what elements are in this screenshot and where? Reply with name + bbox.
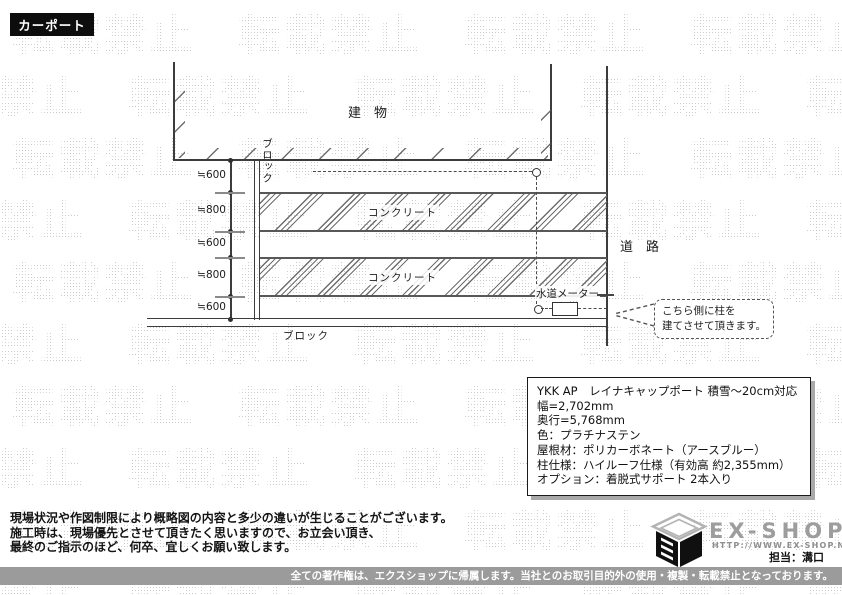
- right-wall-hatch-ticks: [541, 88, 551, 158]
- watermark-text: 転載禁止: [128, 435, 312, 497]
- site-plan-diagram: 建 物 道 路 ブロック ≒600 ≒800 ≒600 ≒800 ≒600 コン…: [0, 0, 842, 360]
- spec-line: 屋根材：ポリカーボネート（アースブルー）: [537, 443, 801, 458]
- bottom-wall-hatch-ticks: [182, 148, 548, 159]
- post-marker-bottom: [534, 305, 543, 314]
- watermark-text: 転載禁止: [12, 373, 196, 435]
- callout-arrow: [612, 300, 656, 330]
- dimension-tick: [215, 257, 245, 259]
- road-label: 道 路: [620, 236, 659, 255]
- ex-shop-cube-icon: [650, 512, 708, 569]
- callout-text-line1: こちら側に柱を: [662, 304, 766, 319]
- spec-line: オプション：着脱式サポート 2本入り: [537, 472, 801, 487]
- post-position-callout: こちら側に柱を 建てさせて頂きます。: [654, 299, 774, 339]
- watermark-text: 転載禁止: [0, 435, 86, 497]
- site-notes: 現場状況や作図制限により概略図の内容と多少の違いが生じることがございます。 施工…: [10, 511, 453, 555]
- page-title: カーポート: [18, 15, 86, 34]
- dimension-tick: [215, 192, 245, 194]
- front-block-line: [147, 318, 607, 327]
- note-line: 施工時は、現場優先とさせて頂きたく思いますので、お立会い頂き、: [10, 526, 453, 541]
- dimension-label: ≒600: [184, 169, 226, 181]
- concrete-label-1: コンクリート: [366, 205, 439, 220]
- quote-sheet-page: 転載禁止転載禁止転載禁止転載禁止転載禁止転載禁止転載禁止転載禁止転載禁止転載禁止…: [0, 0, 842, 595]
- note-line: 最終のご指示のほど、何卒、宜しくお願い致します。: [10, 540, 453, 555]
- spec-line: 柱仕様：ハイルーフ仕様（有効高 約2,355mm）: [537, 458, 801, 473]
- watermark-text: 転載禁止: [238, 373, 422, 435]
- meter-dashed-connector-left: [541, 308, 552, 309]
- block-label-vertical: ブロック: [260, 138, 275, 196]
- carport-outline-dashed-side: [536, 177, 537, 304]
- spec-line: YKK AP レイナキャップポート 積雪～20cm対応: [537, 384, 801, 399]
- dimension-label: ≒800: [184, 204, 226, 216]
- product-spec-box: YKK AP レイナキャップポート 積雪～20cm対応 幅=2,702mm 奥行…: [527, 377, 811, 496]
- building-label: 建 物: [348, 102, 387, 121]
- left-wall-hatch-ticks: [175, 72, 185, 158]
- dimension-label: ≒600: [184, 237, 226, 249]
- concrete-label-2: コンクリート: [366, 270, 439, 285]
- dimension-tick: [215, 231, 245, 233]
- block-label-bottom: ブロック: [283, 328, 329, 343]
- spec-line: 色：プラチナステン: [537, 428, 801, 443]
- dimension-tick: [215, 296, 245, 298]
- copyright-bar: 全ての著作権は、エクスショップに帰属します。当社とのお取引目的外の使用・複製・転…: [0, 567, 842, 585]
- meter-dashed-connector-right: [578, 308, 607, 309]
- spec-line: 奥行=5,768mm: [537, 413, 801, 428]
- callout-text-line2: 建てさせて頂きます。: [662, 319, 766, 334]
- spec-line: 幅=2,702mm: [537, 399, 801, 414]
- watermark-text: 転載禁止: [806, 435, 842, 497]
- page-title-badge: カーポート: [10, 13, 94, 36]
- ex-shop-wordmark: EX-SHOP: [709, 519, 842, 543]
- post-marker-top: [532, 168, 541, 177]
- watermark-text: 転載禁止: [354, 435, 538, 497]
- water-meter-label: 水道メーター: [535, 286, 600, 301]
- carport-outline-dashed-top: [313, 171, 532, 172]
- water-meter-leader-line: [597, 294, 614, 296]
- watermark-text: 転載禁止: [464, 497, 648, 559]
- dimension-dot: [228, 158, 233, 163]
- dimension-label: ≒800: [184, 269, 226, 281]
- dimension-label: ≒600: [184, 301, 226, 313]
- water-meter-box: [552, 302, 578, 316]
- note-line: 現場状況や作図制限により概略図の内容と多少の違いが生じることがございます。: [10, 511, 453, 526]
- agent-name: 担当：溝口: [712, 549, 824, 565]
